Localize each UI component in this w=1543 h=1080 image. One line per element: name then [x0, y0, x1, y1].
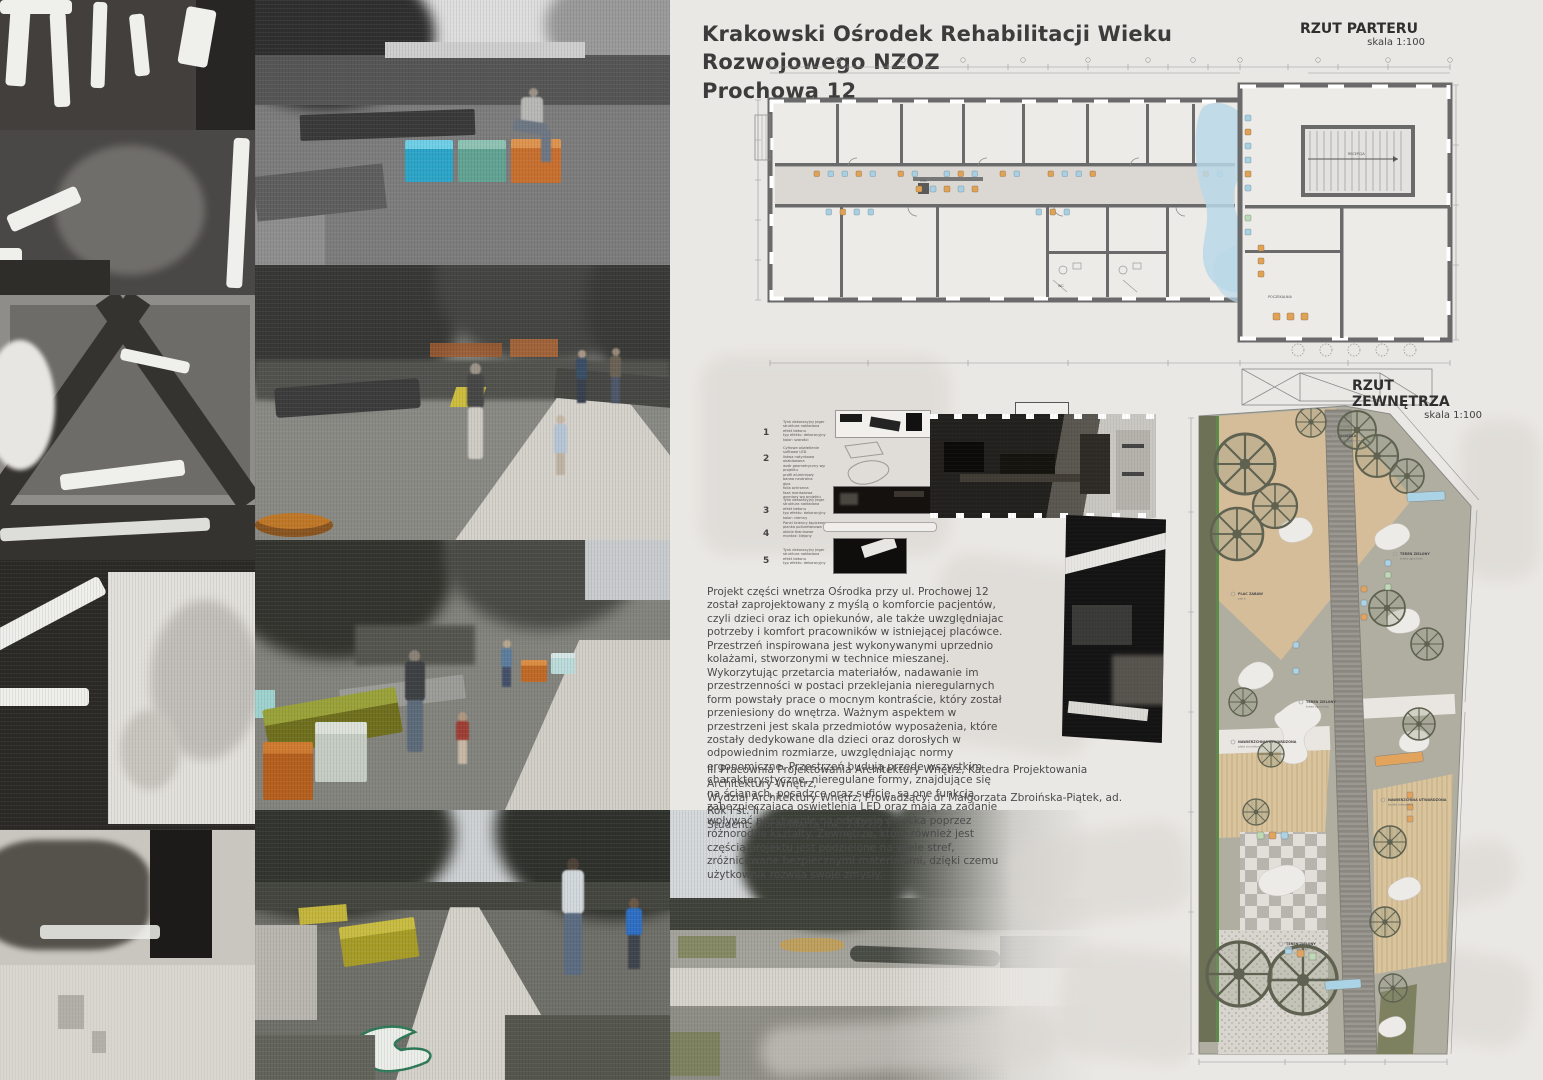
floor-plan-main-wing: [755, 100, 1240, 300]
site-label-sub: kostka drewniana: [1388, 803, 1413, 807]
site-label-sub: trawa ogrodowa: [1286, 947, 1309, 951]
render-walkway: [255, 810, 670, 1080]
site-label: TEREN ZIELONY: [1306, 700, 1336, 704]
render-seating-cubes: [255, 0, 670, 265]
legend-item-number: 3: [763, 506, 769, 516]
presentation-board: Krakowski Ośrodek Rehabilitacji Wieku Ro…: [0, 0, 1543, 1080]
left-collage-strip: [0, 0, 255, 1080]
collage-segment: [0, 830, 255, 965]
materials-legend: 1 Tynk dekoracyjny Jeger struktura nakła…: [763, 408, 943, 573]
floor-plan-ramp-trees: [1292, 344, 1416, 356]
legend-item-number: 1: [763, 428, 769, 438]
zone-wood-right: [1373, 774, 1453, 974]
collage-segment: [0, 965, 255, 1080]
legend-item-text: Tynk dekoracyjny Jeger struktura nakłada…: [783, 498, 835, 520]
collage-segment: [0, 130, 255, 295]
legend-item-2: 2 Cyfrowe oświetlenie sufitowe LED listw…: [763, 446, 769, 465]
floor-plan-right-block: [1240, 85, 1450, 340]
collage-segment: [0, 295, 255, 505]
room-label-poczekalnia: POCZEKALNIA: [1268, 295, 1292, 299]
site-label-sub: piach: [1238, 597, 1246, 601]
room-label-wc: WC: [1058, 284, 1064, 288]
project-description: Projekt części wnetrza Ośrodka przy ul. …: [707, 586, 1007, 882]
legend-item-3: 3 Tynk dekoracyjny Jeger struktura nakła…: [763, 498, 769, 517]
hedge-strip: [1199, 416, 1216, 1042]
site-plan-drawing: ŚCIEŻKApłyta betonowa PLAC ZABAWpiach TE…: [1185, 402, 1533, 1070]
site-label-sub: trawa ogrodowa: [1400, 557, 1423, 561]
legend-item-1: 1 Tynk dekoracyjny Jeger struktura nakła…: [763, 420, 769, 439]
render-family-path: [255, 265, 670, 540]
site-label-sub: trawa ogrodowa: [1306, 705, 1329, 709]
legend-item-5: 5 Tynk dekoracyjny Jeger struktura nakła…: [763, 548, 769, 567]
legend-item-number: 2: [763, 454, 769, 464]
legend-item-text: Tynk dekoracyjny Jeger struktura nakłada…: [783, 420, 835, 442]
site-label: NAWIERZCHNIA UTWARDZONA: [1238, 740, 1297, 744]
bw-plan-collage: [930, 408, 1156, 526]
site-label: ŚCIEŻKA: [1340, 433, 1357, 438]
collage-segment: [0, 560, 255, 830]
legend-item-text: Tynk dekoracyjny Jeger struktura nakłada…: [783, 548, 835, 566]
floor-plan-drawing: HOL RECEPCJA POCZEKALNIA WC: [748, 55, 1460, 370]
legend-item-text: Cyfrowe oświetlenie sufitowe LED listwa …: [783, 446, 835, 500]
legend-thumb-panel: [823, 522, 937, 532]
site-label: NAWIERZCHNIA UTWARDZONA: [1388, 798, 1447, 802]
legend-item-4: 4 Panel ścienny tapicerowany pianka poli…: [763, 521, 769, 540]
floor-plan-title: RZUT PARTERU: [1300, 21, 1425, 37]
legend-sketch-outline: [837, 440, 907, 492]
room-label-recepcja: RECEPCJA: [1348, 152, 1365, 156]
legend-thumb-collage: [835, 410, 931, 438]
floor-plan-caption: RZUT PARTERU skala 1:100: [1300, 21, 1425, 48]
dark-collage: [1062, 515, 1166, 743]
site-label: TEREN ZIELONY: [1400, 552, 1430, 556]
site-label-sub: płyta betonowa: [1340, 439, 1362, 443]
collage-segment: [0, 505, 255, 560]
collage-segment: [0, 0, 255, 130]
site-label: PLAC ZABAW: [1238, 592, 1263, 596]
legend-item-number: 5: [763, 556, 769, 566]
room-label-hol: HOL: [920, 179, 927, 183]
legend-thumb-dark-2: [833, 538, 907, 574]
project-credits: III Pracownia Projektowania Architektury…: [707, 764, 1127, 833]
legend-item-number: 4: [763, 529, 769, 539]
site-label-sub: płyta chodnikowa: [1238, 745, 1263, 749]
floor-plan-scale: skala 1:100: [1300, 37, 1425, 48]
site-label: TEREN ZIELONY: [1286, 942, 1316, 946]
render-benches-father: [255, 540, 670, 810]
